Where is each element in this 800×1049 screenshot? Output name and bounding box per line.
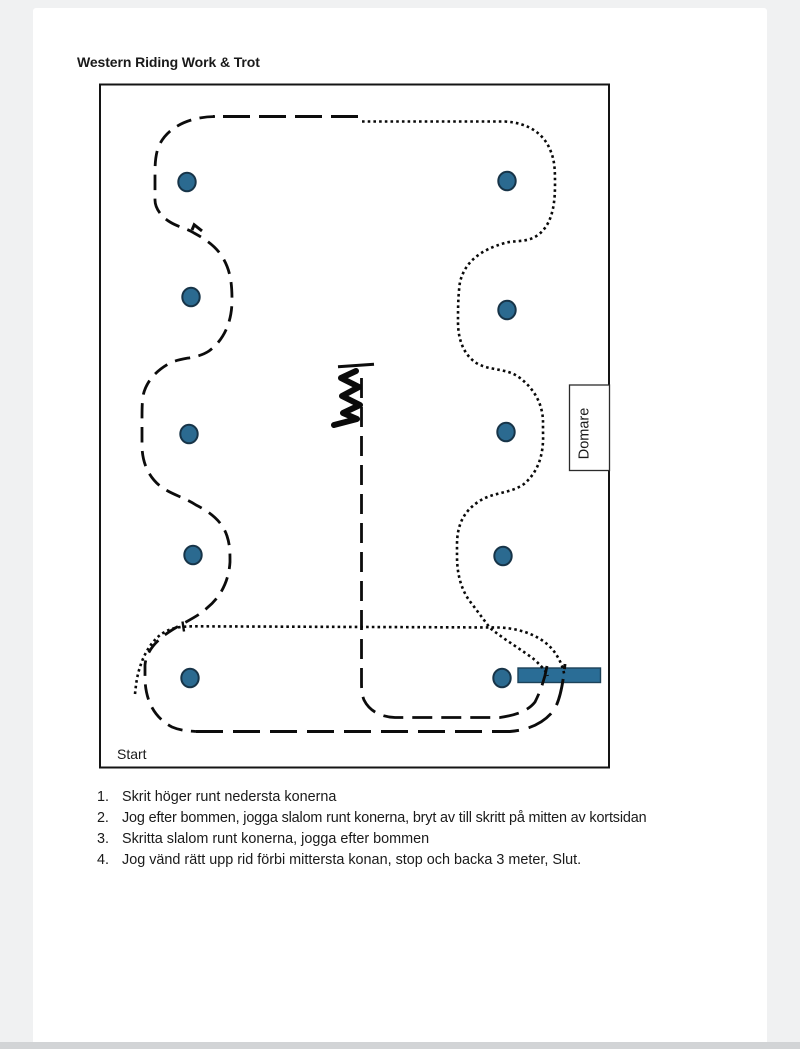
svg-text:Domare: Domare <box>577 408 593 460</box>
